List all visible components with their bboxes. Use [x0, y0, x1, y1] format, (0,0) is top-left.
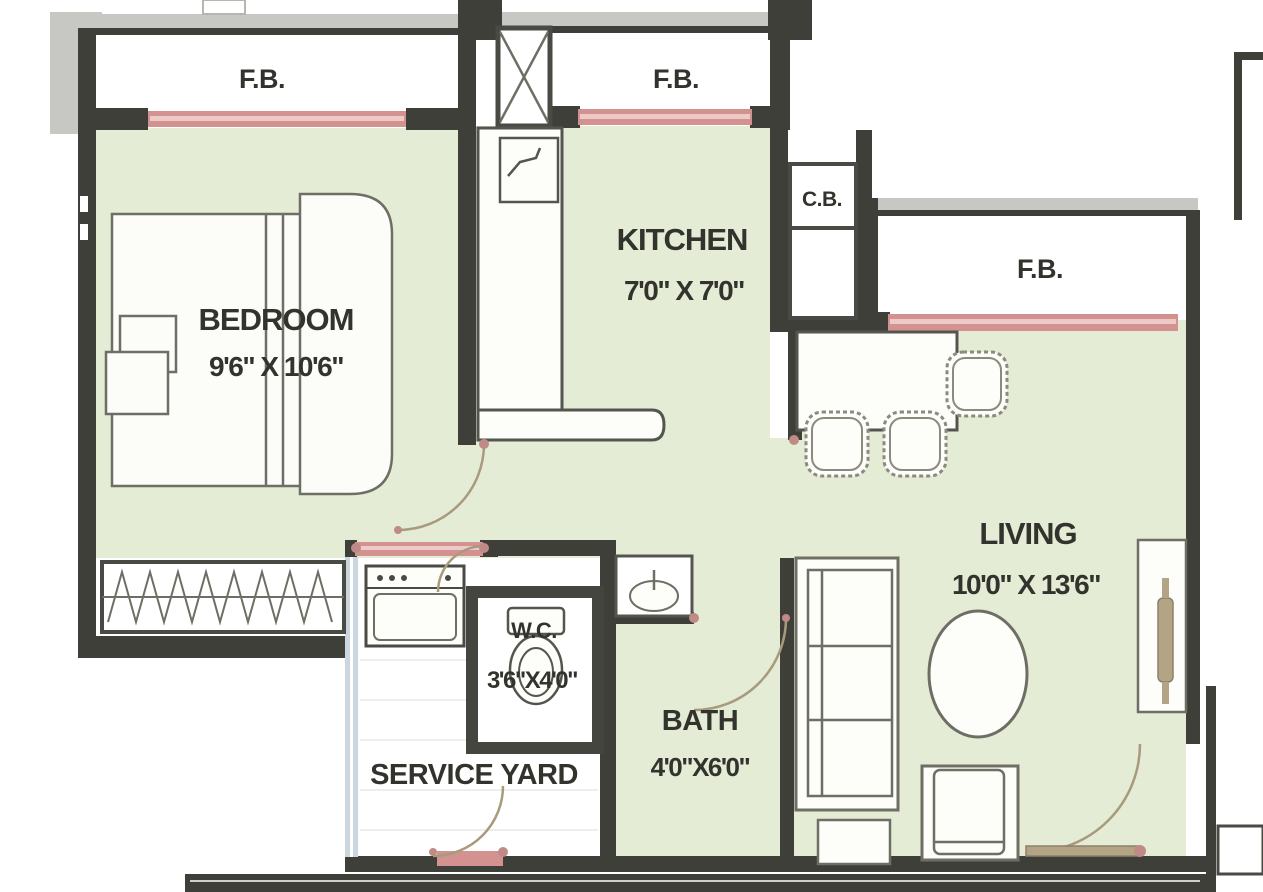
fb-top-left-label: F.B.	[239, 64, 285, 94]
dining-chair	[884, 412, 946, 476]
fb-top-mid-label: F.B.	[653, 64, 699, 94]
kitchen-window	[578, 109, 752, 125]
bath-dims: 4'0"X6'0"	[651, 752, 750, 782]
living-name: LIVING	[979, 516, 1076, 551]
floor-plan: F.B. F.B. F.B. C.B. BEDROOM 9'6" X 10'6"…	[0, 0, 1263, 892]
dining-chair	[806, 412, 868, 476]
service-yard-door-arc	[433, 786, 503, 856]
service-yard-glass-wall	[345, 557, 358, 857]
bedroom-window	[148, 111, 406, 127]
kitchen-dims: 7'0" X 7'0"	[624, 275, 744, 306]
corridor-window	[355, 542, 483, 556]
duct-shaft	[498, 28, 550, 126]
living-dims: 10'0" X 13'6"	[952, 569, 1100, 600]
tv-unit	[1138, 540, 1186, 712]
coffee-table	[929, 611, 1027, 737]
armchair	[922, 766, 1018, 860]
bedroom-dims: 9'6" X 10'6"	[209, 351, 343, 382]
wardrobe	[102, 562, 344, 632]
washing-machine	[366, 566, 464, 646]
side-table	[818, 820, 890, 864]
service-yard-label: SERVICE YARD	[370, 759, 578, 791]
sofa	[796, 558, 898, 810]
bedside-table	[106, 352, 168, 414]
dining-chair	[947, 352, 1007, 416]
tv	[1158, 598, 1173, 682]
living-window	[888, 314, 1178, 331]
bed	[106, 194, 392, 494]
service-yard-door-window	[437, 851, 503, 866]
bedroom-name: BEDROOM	[199, 302, 354, 337]
bath-name: BATH	[662, 705, 738, 737]
kitchen-sink	[500, 138, 558, 202]
fb-right-label: F.B.	[1017, 254, 1063, 284]
kitchen-name: KITCHEN	[617, 222, 748, 257]
cupboard-label: C.B.	[802, 188, 842, 211]
wc-dims: 3'6"X4'0"	[487, 667, 577, 694]
wash-basin	[616, 556, 692, 616]
entrance-door-leaf	[1026, 846, 1140, 856]
wc-name: W.C.	[511, 618, 557, 643]
